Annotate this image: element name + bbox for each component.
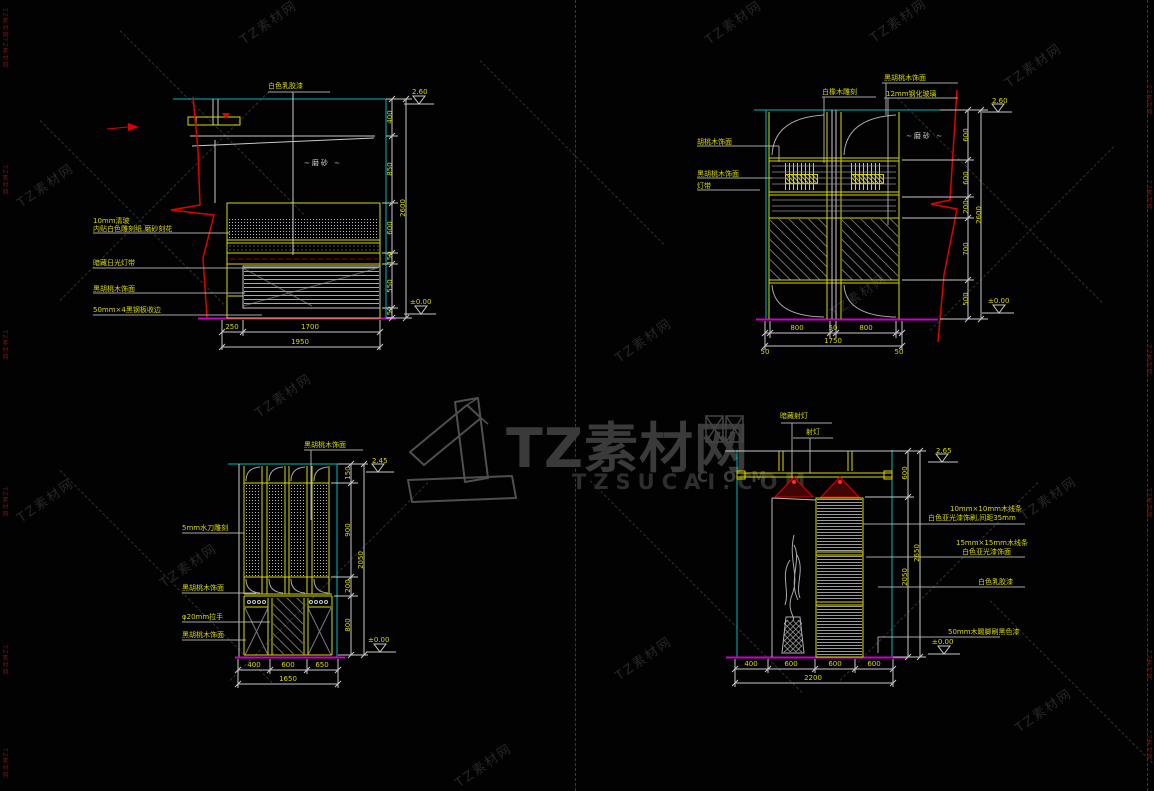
cad-linework (0, 0, 1154, 791)
d1-dim-bottom: 250 (225, 323, 238, 331)
d4-leaders (781, 423, 1025, 653)
d2-dim-overall: 2600 (975, 206, 983, 224)
d4-dim: 600 (901, 466, 909, 479)
d3-dim-bottom-overall: 1650 (279, 675, 297, 683)
d4-level-top: 2.65 (936, 447, 952, 455)
d1-dim: 550 (386, 279, 394, 292)
d4-label-paint: 白色乳胶漆 (978, 578, 1013, 586)
d2-break-line (931, 90, 957, 342)
d1-level-bottom: ±0.00 (410, 298, 431, 306)
d1-level-top: 2.60 (412, 88, 428, 96)
d2-dim: 700 (962, 242, 970, 255)
d1-dim-bottom-overall: 1950 (291, 338, 309, 346)
d3-dim: 900 (344, 523, 352, 536)
d2-dim: 600 (962, 171, 970, 184)
d3-dim: 150 (344, 466, 352, 479)
d2-frame (754, 110, 958, 320)
d3-label-walnut-2: 黑胡桃木饰面 (182, 631, 224, 639)
d2-dim: 600 (962, 128, 970, 141)
d1-label-paint: 白色乳胶漆 (268, 82, 303, 90)
d1-dim: 600 (386, 221, 394, 234)
d3-dim: 800 (344, 618, 352, 631)
d2-label-oak: 白橡木雕刻 (822, 88, 857, 96)
d1-dim: 150 (386, 251, 394, 264)
d1-dim-overall: 2600 (399, 199, 407, 217)
d2-level-top: 2.60 (992, 97, 1008, 105)
d3-label-waterjet: 5mm水刀雕刻 (182, 524, 228, 532)
d3-dim: 200 (344, 579, 352, 592)
d4-frame (725, 450, 908, 658)
d3-dim-overall: 2050 (357, 551, 365, 569)
d2-dim-bottom-overall: 1750 (824, 337, 842, 345)
d3-level-bottom: ±0.00 (368, 636, 389, 644)
d4-dim-bottom-overall: 2200 (804, 674, 822, 682)
d1-label-steel-edge: 50mm×4黑钢板收边 (93, 306, 161, 314)
d2-label-glass: 12mm钢化玻璃 (886, 90, 937, 98)
d4-label-strip15-2: 白色亚光漆饰面 (962, 548, 1011, 556)
d2-dim-bottom: 50 (829, 324, 838, 332)
d4-dim: 2050 (901, 568, 909, 586)
d2-dim: 200 (962, 200, 970, 213)
d3-dim-bottom: 650 (315, 661, 328, 669)
d2-note-frost: ∼磨砂 ∼ (906, 131, 944, 141)
d1-note-frost: ∼磨砂 ∼ (304, 158, 342, 168)
d4-label-skirting: 50mm木踢脚刷黑色漆 (948, 628, 1020, 636)
d2-dim: 500 (962, 292, 970, 305)
d4-label-strip10: 10mm×10mm木线条 (950, 505, 1022, 513)
d1-label-glass: 10mm清玻 (93, 217, 130, 225)
d4-label-spot: 射灯 (806, 428, 820, 436)
d3-label-handle: φ20mm拉手 (182, 613, 223, 621)
d1-frame (173, 92, 396, 319)
d1-label-walnut: 黑胡桃木饰面 (93, 285, 135, 293)
d1-dim: 150 (386, 306, 394, 319)
d4-level-bottom: ±0.00 (932, 638, 953, 646)
d3-frame (228, 464, 345, 658)
d2-dim-bottom: 800 (790, 324, 803, 332)
d4-label-hidden-spot: 暗藏射灯 (780, 412, 808, 420)
d4-dim-overall: 2650 (913, 544, 921, 562)
d2-level-bottom: ±0.00 (988, 297, 1009, 305)
d1-label-light: 暗藏日光灯带 (93, 259, 135, 267)
d4-dim-bottom: 400 (744, 660, 757, 668)
d4-dim-bottom: 600 (784, 660, 797, 668)
d2-label-walnut-left: 胡桃木饰面 (697, 138, 732, 146)
d2-label-blackwalnut: 黑胡桃木饰面 (697, 170, 739, 178)
d2-label-walnut-top: 黑胡桃木饰面 (884, 74, 926, 82)
d1-dim: 850 (386, 162, 394, 175)
d1-label-glass-2: 内贴白色雕刻纸,磨砂刻花 (93, 225, 172, 233)
d2-dim-bottom: 800 (859, 324, 872, 332)
d4-label-strip15: 15mm×15mm木线条 (956, 539, 1028, 547)
d1-dim-bottom: 1700 (301, 323, 319, 331)
d3-dim-bottom: 400 (247, 661, 260, 669)
d4-spotlights (775, 477, 859, 497)
cad-viewport: TZ素材网 TZ素材网 TZ素材网 TZ素材网 TZ素材网 TZ素材网 TZ素材… (0, 0, 1154, 791)
d3-label-walnut: 黑胡桃木饰面 (182, 584, 224, 592)
d1-dimensions (219, 96, 436, 350)
d4-label-strip10-2: 白色亚光漆饰刷,间距35mm (928, 514, 1016, 522)
d2-label-lightstrip: 灯带 (697, 182, 711, 190)
d3-dim-bottom: 600 (281, 661, 294, 669)
d4-dim-bottom: 600 (867, 660, 880, 668)
d3-level-top: 2.45 (372, 457, 388, 465)
d4-dim-bottom: 600 (828, 660, 841, 668)
d1-dim: 400 (386, 110, 394, 123)
d2-dim-edge: 50 (761, 348, 770, 356)
d3-dimensions (235, 461, 396, 688)
d2-dim-edge: 50 (895, 348, 904, 356)
d3-label-walnut-top: 黑胡桃木饰面 (304, 441, 346, 449)
